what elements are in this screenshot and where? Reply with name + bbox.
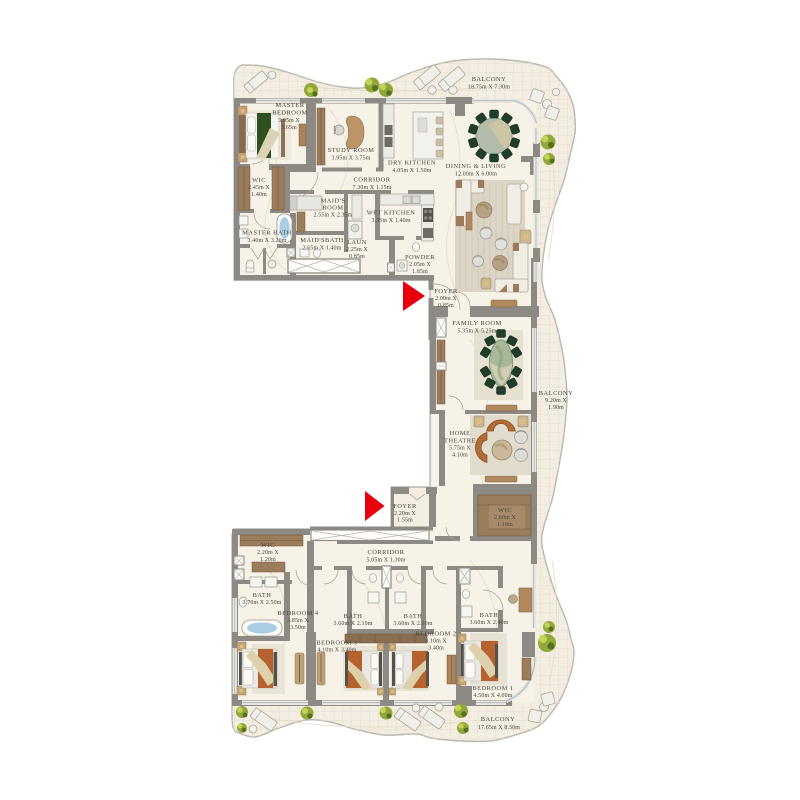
svg-text:BALCONY: BALCONY — [481, 716, 515, 723]
svg-text:ROOM: ROOM — [322, 205, 343, 212]
svg-text:12.00m X 6.00m: 12.00m X 6.00m — [455, 172, 497, 178]
svg-text:0.85m: 0.85m — [349, 254, 365, 260]
svg-text:WIC: WIC — [498, 507, 512, 514]
svg-text:3.85m X: 3.85m X — [287, 618, 309, 624]
svg-text:BALCONY: BALCONY — [539, 390, 573, 397]
svg-text:1.20m: 1.20m — [260, 557, 276, 563]
svg-text:4.05m X 1.50m: 4.05m X 1.50m — [393, 168, 432, 174]
svg-text:2.00m X: 2.00m X — [435, 296, 457, 302]
svg-text:2.25m X: 2.25m X — [346, 247, 368, 253]
svg-text:WIC: WIC — [261, 542, 275, 549]
svg-text:2.60m X: 2.60m X — [494, 515, 516, 521]
svg-text:3.60m X 2.10m: 3.60m X 2.10m — [334, 621, 373, 627]
svg-text:1.40m: 1.40m — [251, 192, 267, 198]
svg-text:WIC: WIC — [252, 177, 266, 184]
svg-text:3.95m X 3.75m: 3.95m X 3.75m — [332, 156, 371, 162]
svg-text:HOME: HOME — [450, 430, 471, 437]
svg-text:BEDROOM 4: BEDROOM 4 — [277, 610, 319, 617]
svg-text:3.35m X 1.40m: 3.35m X 1.40m — [372, 218, 411, 224]
svg-text:BATH: BATH — [344, 613, 363, 620]
svg-text:3.60m X 2.40m: 3.60m X 2.40m — [470, 620, 509, 626]
svg-text:3.95m X: 3.95m X — [278, 118, 300, 124]
svg-text:3.70m X 2.50m: 3.70m X 2.50m — [243, 600, 282, 606]
svg-text:1.85m: 1.85m — [412, 269, 428, 275]
svg-text:5.35m X 5.25m: 5.35m X 5.25m — [458, 329, 497, 335]
svg-text:4.10m X: 4.10m X — [425, 639, 447, 645]
svg-text:WET KITCHEN: WET KITCHEN — [367, 210, 416, 217]
svg-text:1.90m: 1.90m — [548, 405, 564, 411]
svg-text:CORRIDOR: CORRIDOR — [367, 549, 404, 556]
svg-text:CORRIDOR: CORRIDOR — [353, 177, 390, 184]
svg-text:THEATRE: THEATRE — [444, 438, 476, 445]
svg-text:5.05m X 1.30m: 5.05m X 1.30m — [367, 558, 406, 564]
svg-text:BEDROOM 1: BEDROOM 1 — [472, 685, 513, 692]
svg-text:17.65m X 8.50m: 17.65m X 8.50m — [478, 725, 520, 731]
svg-text:3.40m: 3.40m — [428, 646, 444, 652]
svg-text:2.65m X 1.40m: 2.65m X 1.40m — [303, 246, 342, 252]
svg-text:9.20m X: 9.20m X — [545, 398, 567, 404]
svg-text:2.20m X: 2.20m X — [257, 550, 279, 556]
svg-text:3.40m X 3.20m: 3.40m X 3.20m — [248, 238, 287, 244]
svg-text:4.10m X 3.40m: 4.10m X 3.40m — [318, 648, 357, 654]
svg-text:BATH: BATH — [480, 612, 499, 619]
svg-text:4.10m: 4.10m — [452, 453, 468, 459]
svg-text:STUDY ROOM: STUDY ROOM — [328, 147, 375, 154]
svg-text:BEDROOM 3: BEDROOM 3 — [316, 640, 357, 647]
svg-text:1.55m: 1.55m — [397, 518, 413, 524]
svg-text:1.10m: 1.10m — [497, 522, 513, 528]
svg-text:7.30m X 1.15m: 7.30m X 1.15m — [353, 185, 392, 191]
svg-text:MASTER: MASTER — [276, 102, 305, 109]
svg-text:0.85m: 0.85m — [438, 303, 454, 309]
svg-text:5.75m X: 5.75m X — [449, 446, 471, 452]
svg-text:4.50m X 4.00m: 4.50m X 4.00m — [474, 693, 513, 699]
svg-text:MASTER BATH: MASTER BATH — [242, 230, 292, 237]
svg-text:BATH: BATH — [404, 613, 423, 620]
svg-text:FOYER: FOYER — [434, 288, 458, 295]
svg-text:2.45m X: 2.45m X — [248, 185, 270, 191]
svg-text:DRY KITCHEN: DRY KITCHEN — [388, 160, 436, 167]
svg-text:3.50m: 3.50m — [290, 625, 306, 631]
svg-text:BEDROOM: BEDROOM — [272, 110, 307, 117]
svg-text:2.20m X: 2.20m X — [394, 511, 416, 517]
svg-text:3.65m: 3.65m — [281, 125, 297, 131]
svg-text:LAUN: LAUN — [347, 239, 367, 246]
svg-text:18.75m X 7.30m: 18.75m X 7.30m — [468, 85, 510, 91]
svg-text:2.55m X 2.35m: 2.55m X 2.35m — [314, 213, 353, 219]
svg-text:MAID'S: MAID'S — [321, 198, 346, 205]
svg-text:FAMILY ROOM: FAMILY ROOM — [452, 320, 501, 327]
svg-text:MAID'SBATH: MAID'SBATH — [300, 237, 343, 244]
svg-text:POWDER: POWDER — [405, 254, 435, 261]
svg-text:BALCONY: BALCONY — [472, 76, 506, 83]
svg-text:BEDROOM 2: BEDROOM 2 — [415, 631, 456, 638]
svg-text:3.60m X 2.10m: 3.60m X 2.10m — [394, 621, 433, 627]
svg-text:BATH: BATH — [253, 592, 272, 599]
svg-text:DINING & LIVING: DINING & LIVING — [446, 163, 506, 170]
svg-text:2.05m X: 2.05m X — [409, 262, 431, 268]
svg-text:FOYER: FOYER — [393, 503, 417, 510]
